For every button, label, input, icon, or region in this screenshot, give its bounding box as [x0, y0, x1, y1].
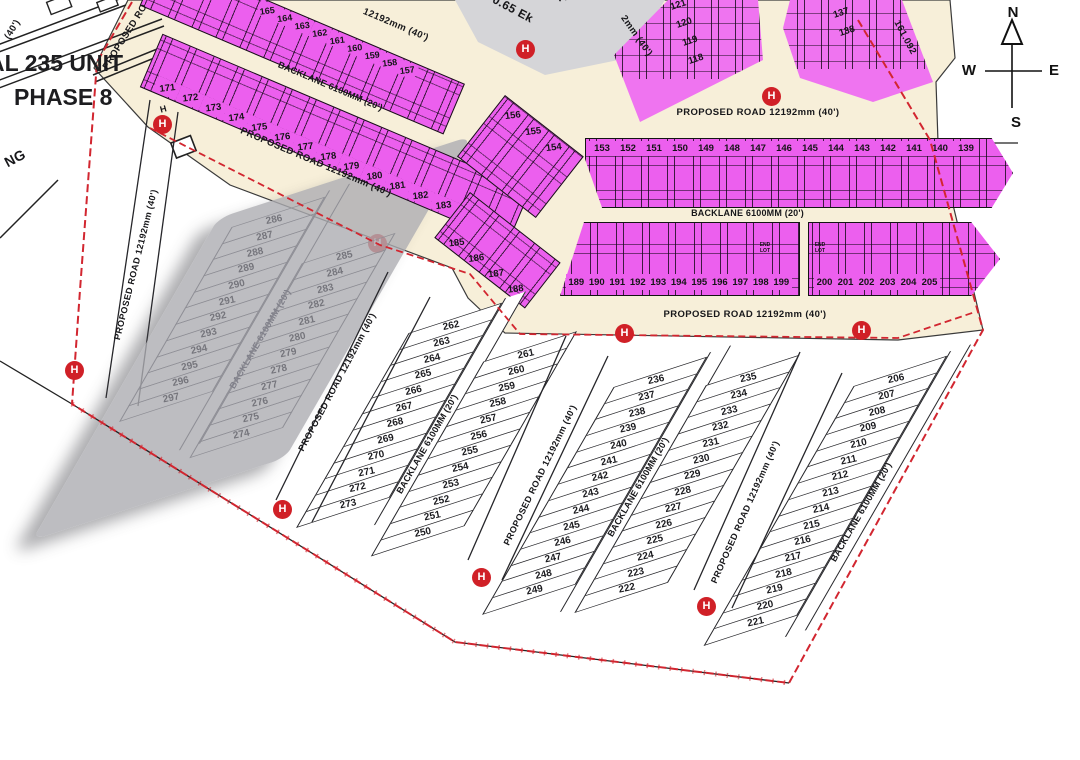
lot-number: 141	[901, 141, 927, 156]
lot-number: 150	[667, 141, 693, 156]
hydrant-marker: H	[472, 568, 491, 587]
road-label-top-horizontal: PROPOSED ROAD 12192mm (40')	[638, 107, 878, 118]
lot-number: 197	[730, 274, 751, 290]
lot-number: 145	[797, 141, 823, 156]
backlane-label-m2: BACKLANE 6100MM (20')	[655, 208, 840, 218]
end-lot-label: END LOT	[812, 243, 828, 255]
lot-number: 193	[648, 274, 669, 290]
lot-number: 139	[953, 141, 979, 156]
plan-title-phase: PHASE 8	[14, 84, 112, 111]
lot-number: 143	[849, 141, 875, 156]
lot-number: 151	[641, 141, 667, 156]
existing-building	[97, 0, 118, 12]
lot-number: 152	[615, 141, 641, 156]
lot-number: 147	[745, 141, 771, 156]
existing-building	[47, 0, 72, 14]
lot-number: 194	[669, 274, 690, 290]
hydrant-marker: H	[516, 40, 535, 59]
lot-number: 149	[693, 141, 719, 156]
lot-number: 153	[589, 141, 615, 156]
hydrant-marker: H	[65, 361, 84, 380]
compass-south: S	[1008, 114, 1024, 131]
lot-number: 202	[856, 274, 877, 290]
compass-east: E	[1046, 62, 1062, 79]
hydrant-marker: H	[273, 500, 292, 519]
lot-number: 195	[689, 274, 710, 290]
lot-number: 146	[771, 141, 797, 156]
end-lot-label: END LOT	[757, 243, 773, 255]
hydrant-marker: H	[615, 324, 634, 343]
lot-number: 204	[898, 274, 919, 290]
lot-number: 191	[607, 274, 628, 290]
lot-number: 205	[919, 274, 940, 290]
hydrant-marker: H	[762, 87, 781, 106]
road-label-mid-horizontal: PROPOSED ROAD 12192mm (40')	[625, 309, 865, 320]
lot-number: 203	[877, 274, 898, 290]
lot-number: 148	[719, 141, 745, 156]
compass-north: N	[1005, 4, 1021, 21]
hydrant-marker: H	[697, 597, 716, 616]
lot-number: 190	[587, 274, 608, 290]
lot-number: 189	[566, 274, 587, 290]
lot-number: 201	[835, 274, 856, 290]
compass-west: W	[961, 62, 977, 79]
hydrant-marker: H	[153, 115, 172, 134]
compass-rose-icon	[985, 20, 1042, 108]
lot-number: 196	[710, 274, 731, 290]
site-plan-canvas: 165164163162161160159158157 171172173174…	[0, 0, 1080, 760]
lot-number: 140	[927, 141, 953, 156]
lot-number: 144	[823, 141, 849, 156]
lot-number: 199	[771, 274, 792, 290]
hydrant-marker: H	[852, 321, 871, 340]
lot-number: 198	[751, 274, 772, 290]
lot-number: 142	[875, 141, 901, 156]
lot-number: 200	[814, 274, 835, 290]
lot-number: 192	[628, 274, 649, 290]
